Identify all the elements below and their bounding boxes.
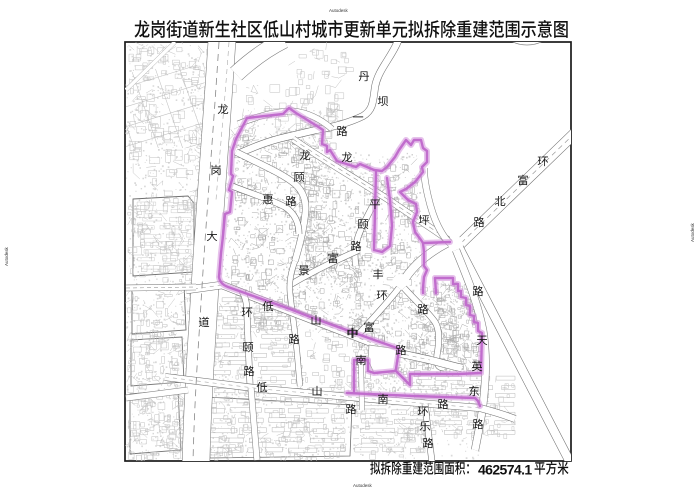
svg-text:Autodesk: Autodesk bbox=[329, 8, 349, 13]
svg-text:Autodesk: Autodesk bbox=[690, 222, 695, 242]
svg-text:Autodesk: Autodesk bbox=[4, 246, 9, 266]
svg-text:462574.1: 462574.1 bbox=[478, 462, 532, 478]
svg-text:Autodesk: Autodesk bbox=[353, 483, 373, 488]
